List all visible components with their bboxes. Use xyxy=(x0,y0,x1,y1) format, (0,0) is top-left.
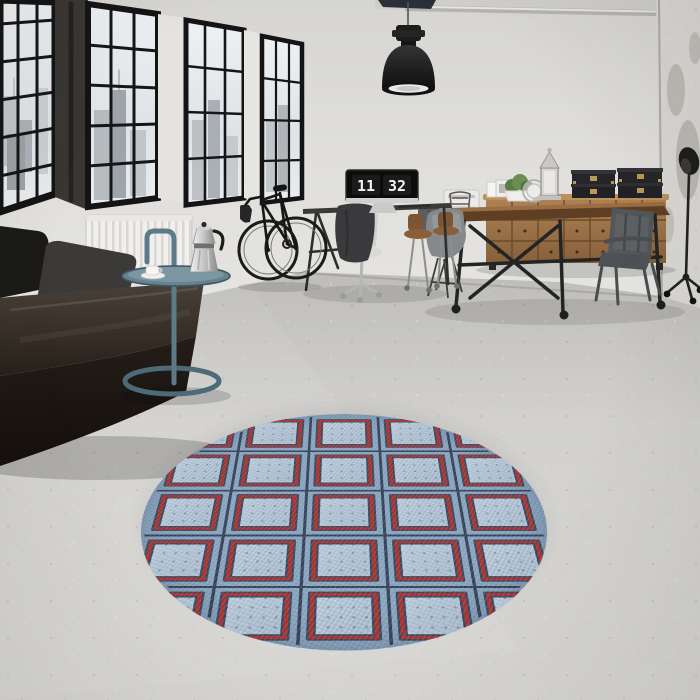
window-pillar xyxy=(244,30,262,202)
dining-set-shadow xyxy=(425,299,685,325)
clock-minutes: 32 xyxy=(388,177,406,195)
window-pillar xyxy=(158,14,186,204)
loft-interior-photo: { "scene": { "type": "photograph", "sett… xyxy=(0,0,700,700)
storage-box xyxy=(617,183,663,198)
jacket xyxy=(335,203,375,262)
storage-box xyxy=(617,168,663,184)
window-bay-3 xyxy=(186,20,244,205)
storage-box xyxy=(571,184,616,198)
window-bay-2 xyxy=(88,4,158,207)
clock-hours: 11 xyxy=(357,177,375,195)
desk-shadow xyxy=(303,285,447,303)
rug-shadow xyxy=(134,400,558,636)
window-bay-4 xyxy=(262,36,302,203)
storage-box xyxy=(571,170,616,185)
window-bay-1 xyxy=(0,0,55,212)
